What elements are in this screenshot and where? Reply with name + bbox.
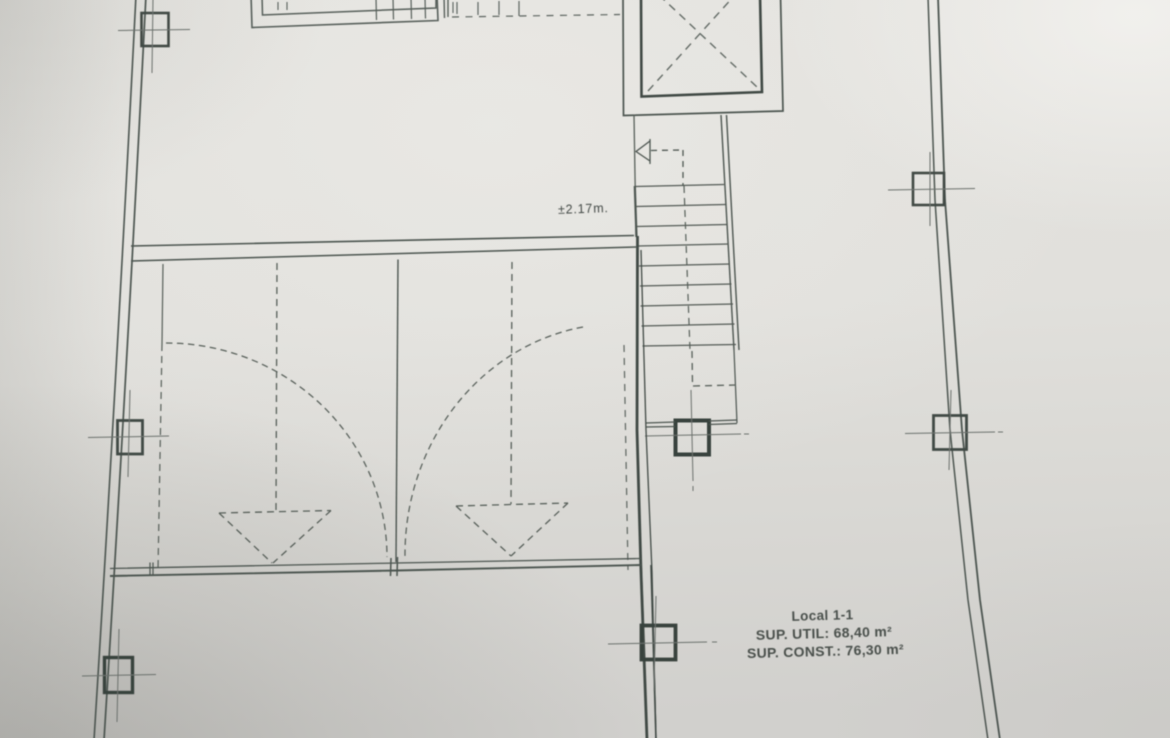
svg-text:Local 1-1: Local 1-1 [791,607,854,624]
svg-text:±2.17m.: ±2.17m. [558,201,609,217]
